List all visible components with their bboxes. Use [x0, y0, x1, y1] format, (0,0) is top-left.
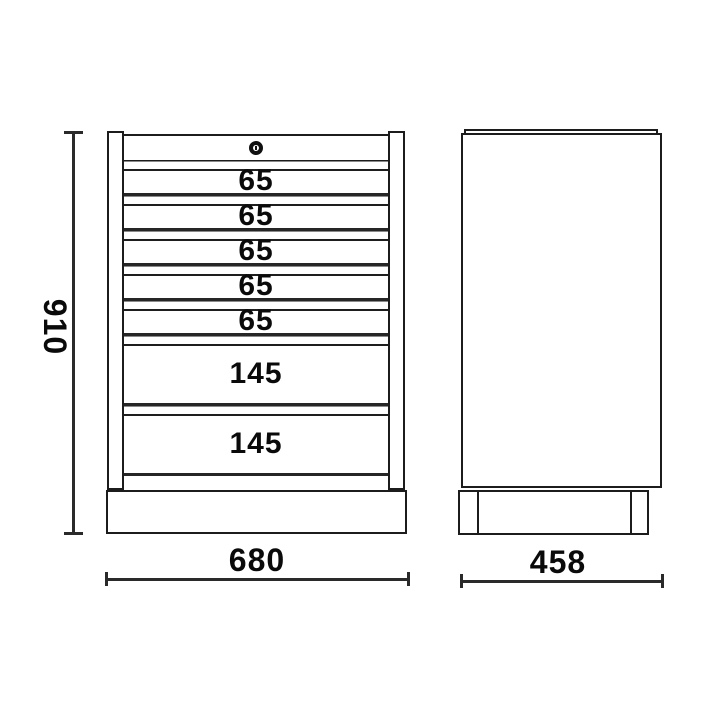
drawer-5-height-label: 65 — [238, 306, 273, 336]
width-dimension-left-tick — [105, 572, 108, 586]
drawer-7-handle — [124, 406, 388, 416]
drawer-5: 65 — [124, 301, 388, 336]
depth-dimension-line — [461, 580, 663, 583]
keyhole-slot — [255, 146, 257, 150]
drawer-6-handle — [124, 336, 388, 346]
height-dimension-label: 910 — [41, 296, 71, 358]
drawer-4-face: 65 — [124, 276, 388, 296]
front-base-plinth — [106, 490, 407, 534]
drawer-6-height-label: 145 — [229, 359, 282, 389]
drawer-2-face: 65 — [124, 206, 388, 226]
front-right-rail — [388, 131, 405, 490]
side-base-plinth — [458, 490, 649, 535]
width-dimension-line — [106, 578, 409, 581]
drawer-7-face: 145 — [124, 416, 388, 471]
drawer-3: 65 — [124, 231, 388, 266]
side-front-foot-line — [477, 492, 479, 533]
drawer-2: 65 — [124, 196, 388, 231]
drawer-2-height-label: 65 — [238, 201, 273, 231]
drawer-7: 145 — [124, 406, 388, 476]
depth-dimension-left-tick — [460, 574, 463, 588]
width-dimension-label: 680 — [207, 544, 307, 576]
drawer-3-face: 65 — [124, 241, 388, 261]
drawer-5-face: 65 — [124, 311, 388, 331]
drawer-6-face: 145 — [124, 346, 388, 401]
keyhole-lock-icon — [249, 141, 263, 155]
drawer-stack: 65 65 65 65 65 — [122, 161, 390, 476]
drawer-4: 65 — [124, 266, 388, 301]
front-top-panel — [122, 134, 390, 162]
technical-drawing-canvas: 910 65 65 65 65 — [0, 0, 720, 720]
drawer-6: 145 — [124, 336, 388, 406]
width-dimension-right-tick — [407, 572, 410, 586]
depth-dimension-right-tick — [661, 574, 664, 588]
drawer-1: 65 — [124, 161, 388, 196]
depth-dimension-label: 458 — [508, 546, 608, 578]
drawer-1-height-label: 65 — [238, 166, 273, 196]
side-body-panel — [461, 133, 662, 488]
drawer-3-height-label: 65 — [238, 236, 273, 266]
drawer-1-face: 65 — [124, 171, 388, 191]
height-dimension-bottom-tick — [64, 532, 83, 535]
drawer-4-height-label: 65 — [238, 271, 273, 301]
drawer-7-height-label: 145 — [229, 429, 282, 459]
side-rear-foot-line — [630, 492, 632, 533]
height-dimension-top-tick — [64, 131, 83, 134]
